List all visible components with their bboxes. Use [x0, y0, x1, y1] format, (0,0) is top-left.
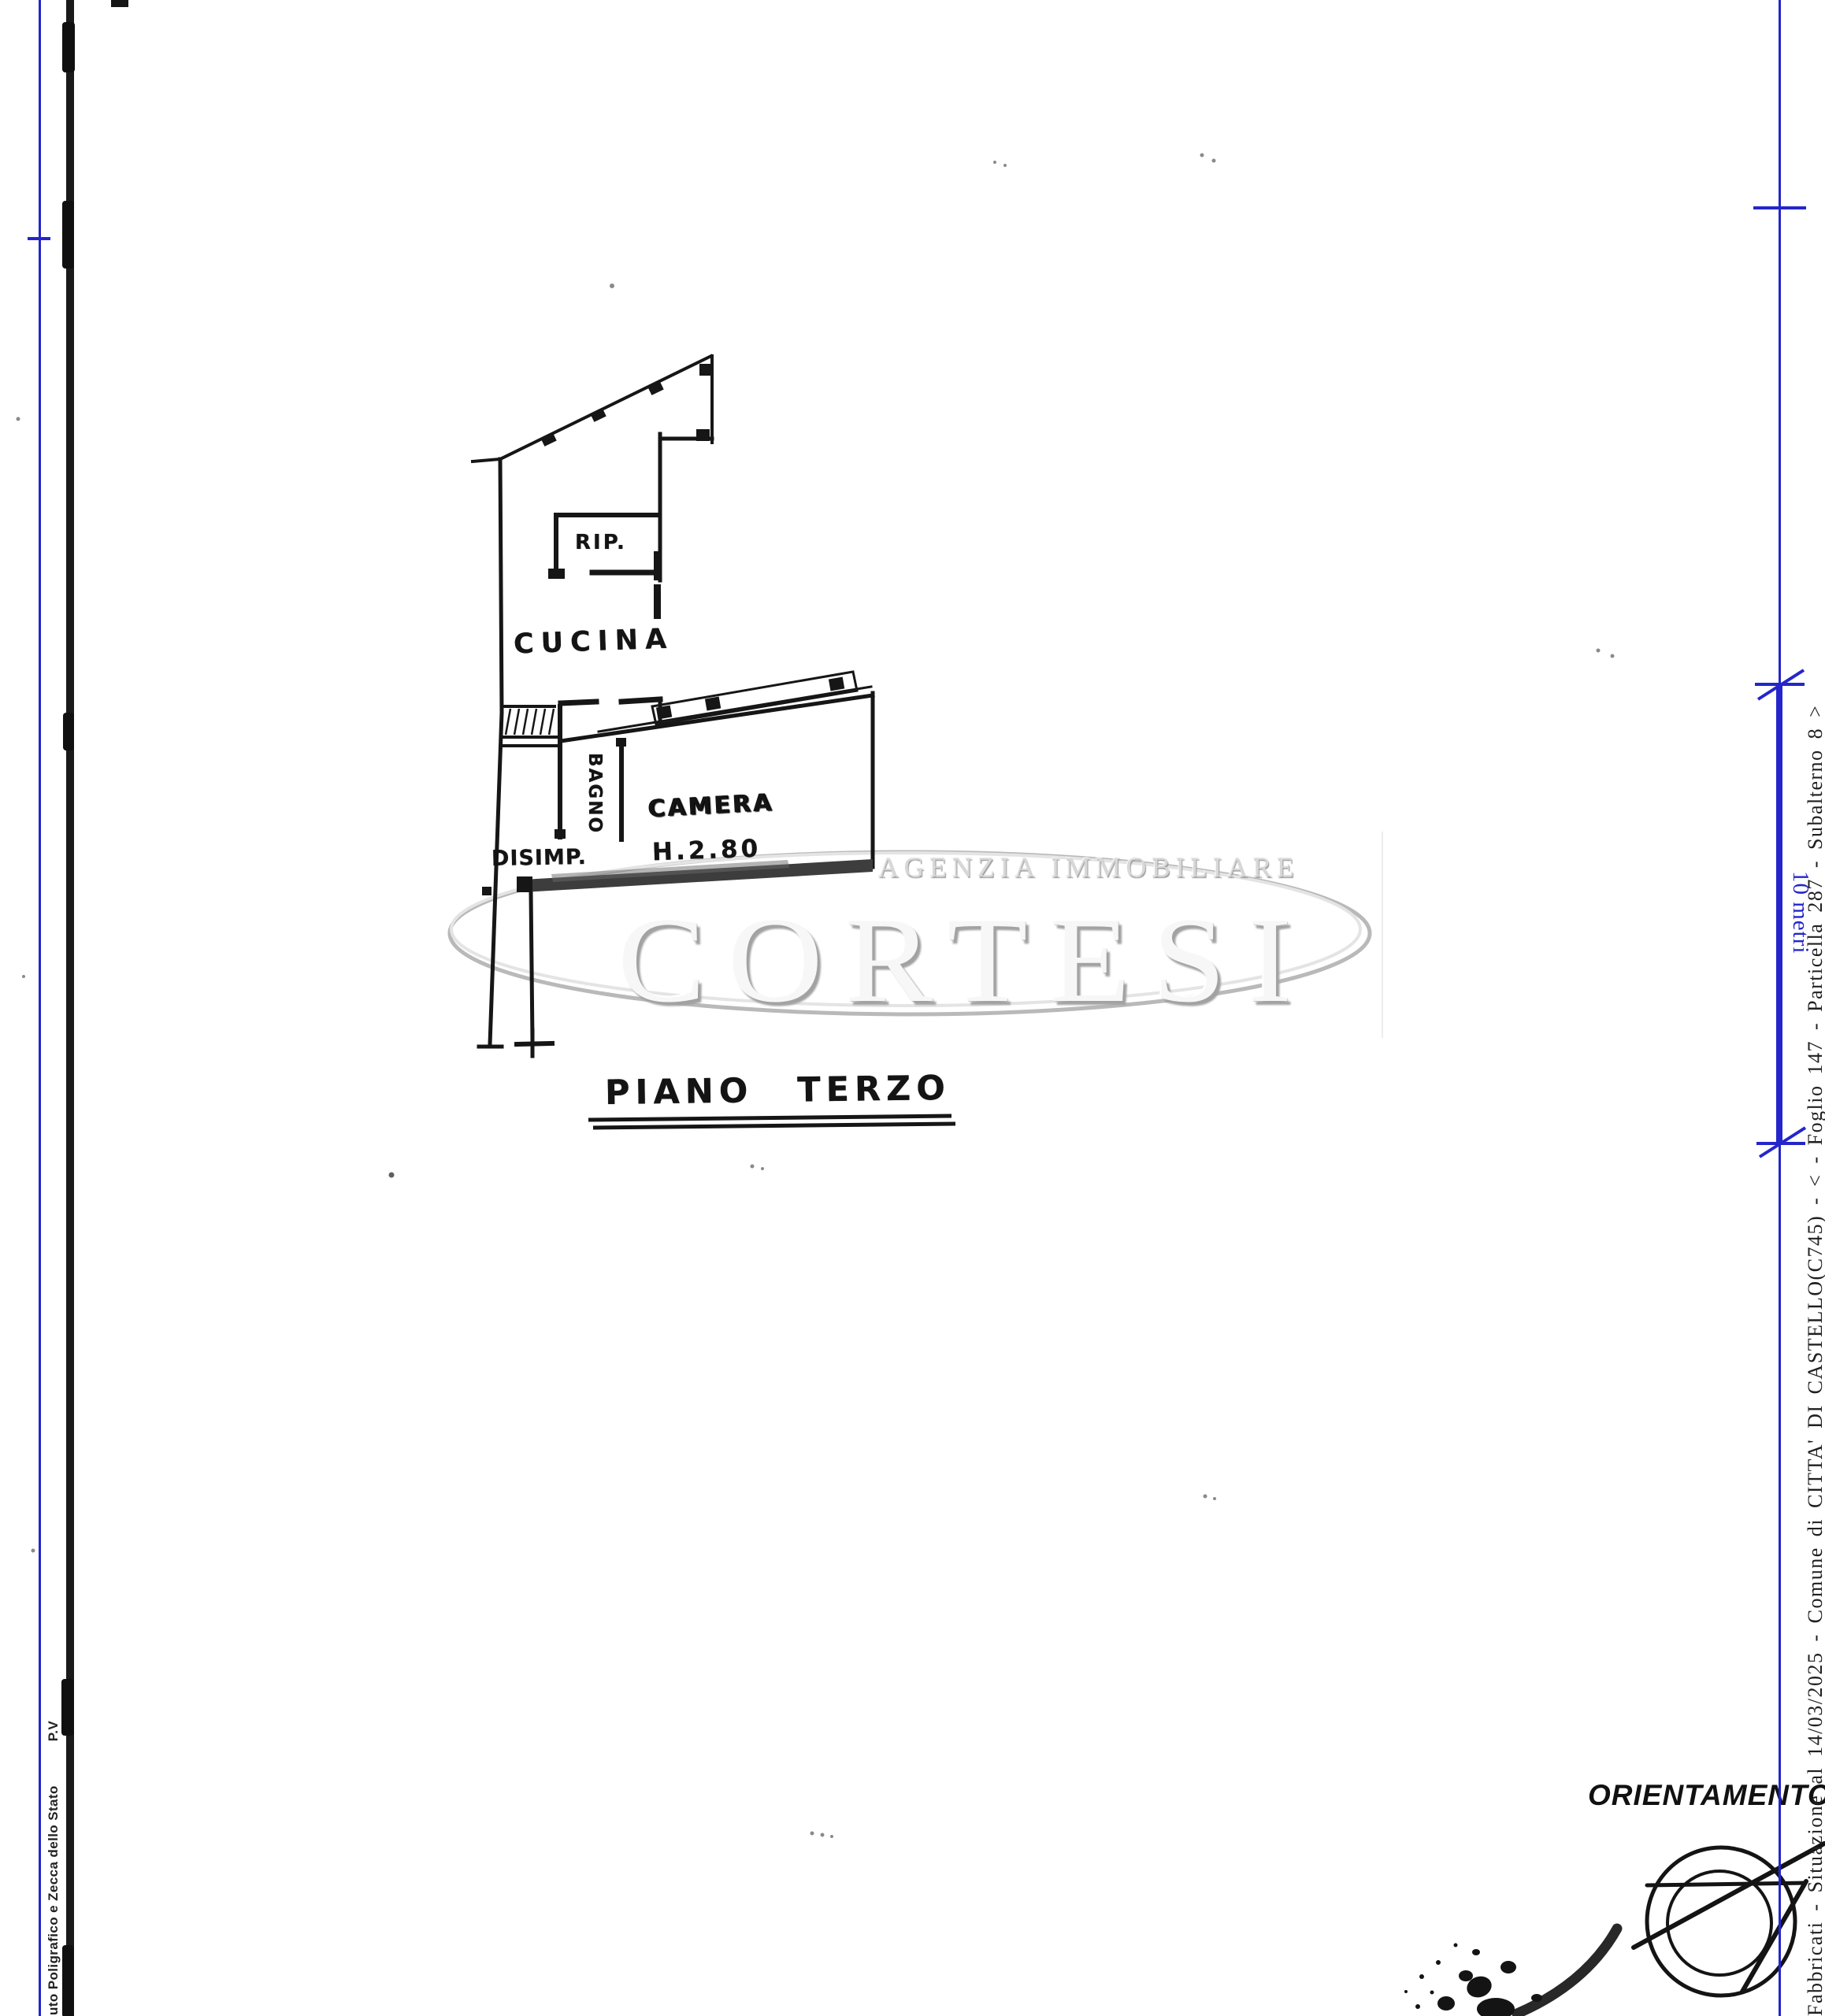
rule-ink-blob — [61, 1679, 74, 1736]
orientation-label: ORIENTAMENTO — [1588, 1779, 1825, 1812]
balcony-hatch — [502, 706, 562, 746]
room-label-bagno: BAGNO — [584, 753, 605, 834]
cadastral-reference-text: Fabbricati - Situazione al 14/03/2025 - … — [1804, 625, 1825, 2016]
rule-ink-blob — [63, 713, 74, 750]
ceiling-height-note: H.2.80 — [651, 835, 761, 867]
registration-line-right-blue-bottom — [1779, 1142, 1781, 2016]
room-label-disimp: DISIMP. — [491, 845, 587, 871]
printer-credit-text: uto Poligrafico e Zecca dello StatoP.V — [46, 1677, 63, 2015]
scale-bar-10m — [1776, 685, 1782, 1143]
caption-underline — [588, 1116, 955, 1128]
floor-caption: PIANO TERZO — [605, 1069, 951, 1113]
room-label-cucina: CUCINA — [513, 623, 673, 660]
registration-line-right-blue-top — [1779, 0, 1781, 687]
registration-line-left-blue — [39, 0, 41, 2016]
scan-noise — [17, 154, 1615, 1839]
registration-tick — [28, 208, 1806, 1157]
rule-ink-blob — [62, 1945, 74, 2016]
printer-credit-main: uto Poligrafico e Zecca dello Stato — [46, 1785, 61, 2015]
scale-bar-label: 10 metri — [1790, 871, 1813, 954]
rule-ink-blob — [62, 201, 74, 269]
compass-icon — [1634, 1844, 1824, 1996]
room-label-rip: RIP. — [575, 531, 627, 554]
printer-credit-suffix: P.V — [46, 1721, 61, 1741]
stamp-icon — [1404, 1929, 1617, 2016]
wall-piers — [111, 0, 844, 895]
scanned-document-page: AGENZIA IMMOBILIARE CORTESI — [0, 0, 1825, 2016]
floor-plan-drawing — [0, 0, 1825, 2016]
rule-ink-blob — [62, 22, 75, 72]
